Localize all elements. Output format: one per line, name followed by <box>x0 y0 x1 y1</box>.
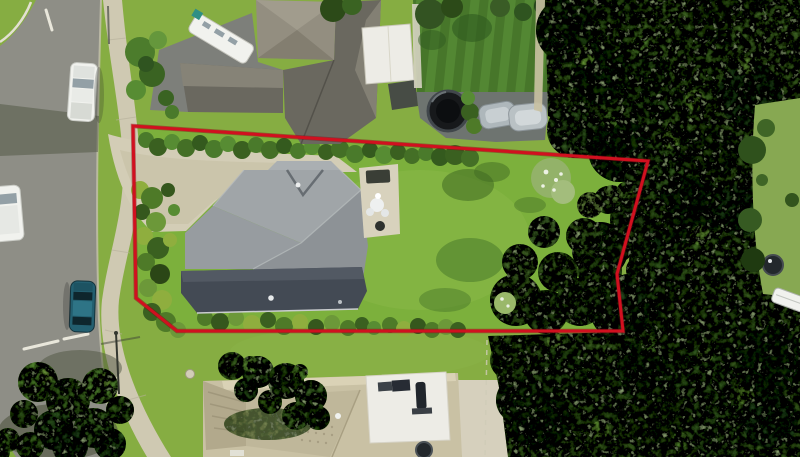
native-bush-part <box>490 340 530 380</box>
flowering-trees-part <box>494 292 516 314</box>
section-trees-part <box>502 244 538 280</box>
left-garden-bed-part <box>161 183 175 197</box>
verge-bushes-part <box>138 56 154 72</box>
roof-vent-dots-part <box>331 426 333 428</box>
roof-vent-dots-part <box>309 440 311 442</box>
white-van-part <box>0 205 20 235</box>
tank-highlight <box>768 259 772 263</box>
clearing-edge-tree-2 <box>738 208 762 232</box>
patio-shrubs-part <box>461 103 479 121</box>
roof-vent-dots-part <box>325 442 327 444</box>
roof-vent-dot-2 <box>338 300 342 304</box>
native-bush-part <box>534 344 586 396</box>
neighbor-lawn-trees-part <box>418 30 446 50</box>
top-hedge-part <box>290 143 306 159</box>
aerial-photo <box>0 0 800 457</box>
umbrella-top <box>375 193 381 199</box>
top-hedge-part <box>261 141 279 159</box>
native-bush-part <box>661 131 679 149</box>
native-bush-part <box>682 122 738 178</box>
ute-shadow <box>94 67 104 123</box>
flowering-trees-part <box>541 184 545 188</box>
top-hedge-part <box>461 149 479 167</box>
flowering-trees-part <box>506 304 509 307</box>
native-bush-part <box>496 376 544 424</box>
house-patio <box>359 164 400 238</box>
native-bush-part <box>736 386 754 404</box>
veranda-garden-strip-part <box>324 315 340 331</box>
clearing-bush-2 <box>785 193 799 207</box>
white-ute-part <box>70 102 92 119</box>
bottom-centre-trees-part <box>282 402 310 430</box>
roadside-trees-part <box>106 396 134 424</box>
lawn-tree-shadows-part <box>436 238 504 282</box>
verge-bushes-part <box>165 105 179 119</box>
neighbor-lawn-trees-part <box>452 14 492 42</box>
native-bush-part <box>680 230 740 290</box>
native-bush-part <box>736 56 754 74</box>
roadside-trees-part <box>10 400 38 428</box>
neighbor-deck <box>388 80 418 110</box>
section-trees-part <box>566 218 602 254</box>
section-trees-part <box>602 185 622 205</box>
roof-vent-dots-part <box>323 433 325 435</box>
top-hedge-part <box>375 146 393 164</box>
veranda-garden-strip-part <box>292 314 308 330</box>
patio-shrubs-part <box>461 91 475 105</box>
white-van-part <box>0 193 17 205</box>
white-ute-part <box>73 65 95 78</box>
clearing-edge-tree-3 <box>741 248 765 272</box>
clearing-bush-1 <box>757 119 775 137</box>
bottom-centre-trees-part <box>234 378 258 402</box>
veranda-garden-strip-part <box>340 320 356 336</box>
clearing-bush-3 <box>756 174 768 186</box>
aerial-photo-stage <box>0 0 800 457</box>
bottom-centre-trees-part <box>292 364 308 380</box>
native-bush-part <box>697 347 713 363</box>
left-garden-bed-part <box>163 233 177 247</box>
blue-car <box>69 281 96 333</box>
verge-bushes-part <box>158 90 174 106</box>
verge-bushes-part <box>149 31 167 49</box>
manhole <box>186 370 195 379</box>
verge-bushes-part <box>126 80 146 100</box>
roof-white-dot <box>335 413 341 419</box>
main-roof-gable <box>268 161 340 170</box>
blue-car-part <box>73 292 92 301</box>
veranda-garden-strip-part <box>211 313 229 331</box>
lawn-tree-shadows-part <box>474 162 510 182</box>
roof-vent-dots-part <box>315 432 317 434</box>
parked-car-light-2-part <box>514 109 541 127</box>
veranda-garden-strip-part <box>260 312 276 328</box>
section-trees-part <box>538 252 578 292</box>
clearing-edge-tree-1 <box>738 136 766 164</box>
bottom-centre-trees-part <box>258 390 282 414</box>
bbq-unit <box>366 169 391 183</box>
planter-pot <box>375 221 385 231</box>
neighbor-lawn-trees-part <box>514 3 532 21</box>
flowering-trees-part <box>551 180 575 204</box>
native-bush-part <box>575 45 595 65</box>
roof-dark-bar <box>412 407 432 414</box>
roadside-trees-part <box>97 373 111 387</box>
round-tank <box>416 442 432 457</box>
roadside-trees-part <box>39 369 53 383</box>
native-bush-part <box>641 336 659 354</box>
white-detail <box>230 450 244 456</box>
section-trees-part <box>644 230 664 250</box>
roof-vent-dots-part <box>317 441 319 443</box>
flowering-trees-part <box>554 178 558 182</box>
outdoor-chair-1 <box>366 208 374 216</box>
solar-panel-1 <box>378 382 393 392</box>
outdoor-chair-2 <box>381 209 389 217</box>
flue-cylinder <box>415 382 426 409</box>
blue-car-part <box>72 317 91 326</box>
bottom-centre-trees-part <box>242 356 258 372</box>
spa-pool-part <box>436 99 460 123</box>
flowering-trees-part <box>544 170 549 175</box>
roof-vent-dots-part <box>301 439 303 441</box>
solar-panel-2 <box>392 379 411 391</box>
native-bush-part <box>685 90 705 110</box>
car-shadow <box>63 282 71 330</box>
neighbor-lawn-trees-part <box>415 0 445 29</box>
top-hedge-part <box>276 138 292 154</box>
pole-top <box>114 331 118 335</box>
roof-vent-dots-part <box>331 434 333 436</box>
native-bush-part <box>591 421 609 439</box>
parked-car-light-2 <box>508 102 549 132</box>
flowering-trees-part <box>552 188 556 192</box>
white-ute <box>67 62 98 122</box>
chimney-dot <box>296 183 301 188</box>
white-ute-part <box>72 78 94 88</box>
white-van <box>0 185 24 242</box>
native-bush-part <box>602 112 618 128</box>
lawn-tree-shadows-part <box>514 197 546 213</box>
native-bush-part <box>672 432 688 448</box>
sign-pole <box>108 6 109 44</box>
flowering-trees-part <box>500 297 504 301</box>
roof-vent-dot <box>268 295 274 301</box>
native-bush-part <box>547 332 563 348</box>
dark-tank <box>763 255 783 275</box>
section-trees-part <box>577 192 603 218</box>
native-bush-part <box>631 36 649 54</box>
bottom-centre-trees-part <box>306 406 330 430</box>
left-garden-bed-part <box>168 204 180 216</box>
blue-car-part <box>73 301 93 317</box>
top-hedge-part <box>346 145 364 163</box>
native-bush-part <box>690 225 710 245</box>
section-trees-part <box>626 256 654 284</box>
white-ute-part <box>71 88 93 102</box>
flowering-trees-part <box>559 172 563 176</box>
section-trees-part <box>528 216 560 248</box>
bottom-centre-trees-part <box>218 352 246 380</box>
top-hedge-part <box>404 148 420 164</box>
blue-car-part <box>74 283 93 292</box>
patio-shrubs-part <box>466 118 482 134</box>
lawn-tree-shadows-part <box>419 288 471 312</box>
